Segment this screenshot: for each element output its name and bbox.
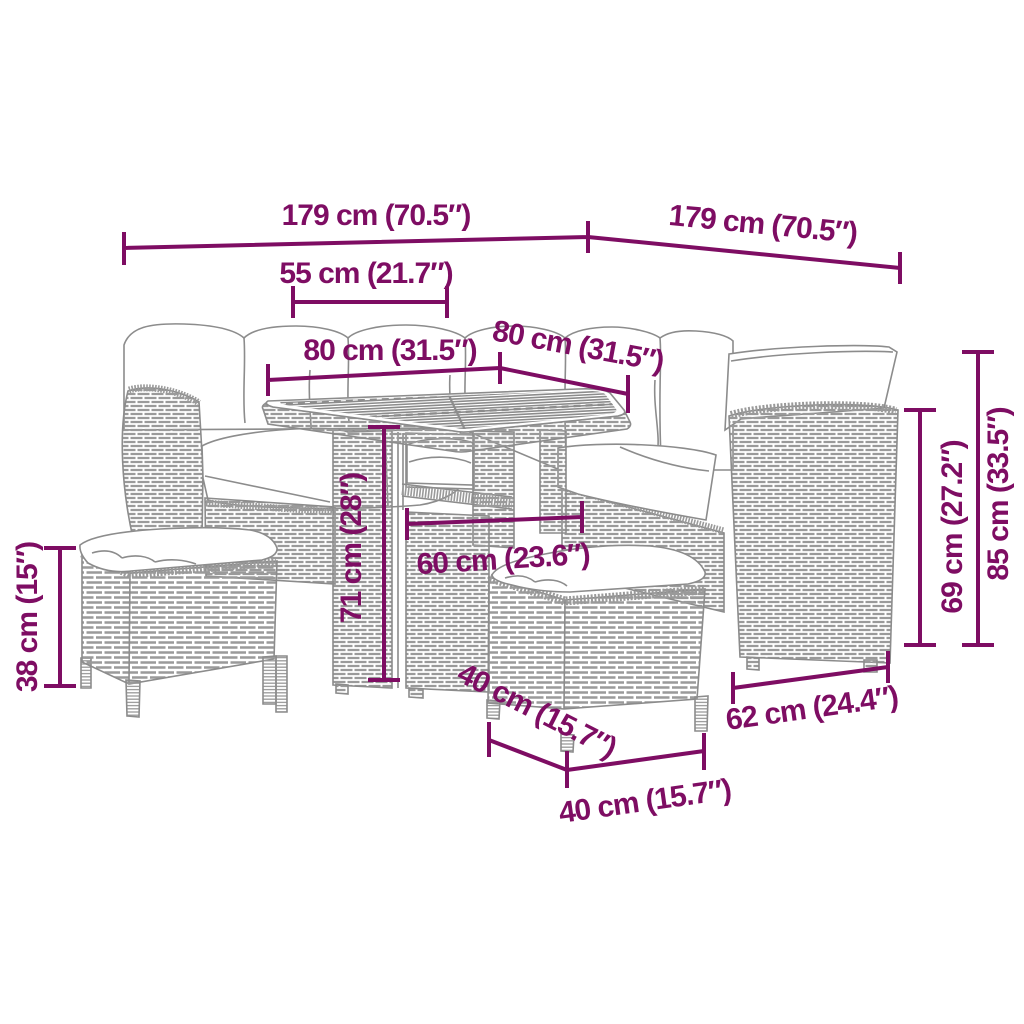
svg-text:55 cm (21.7″): 55 cm (21.7″)	[279, 257, 452, 290]
svg-text:71 cm (28″): 71 cm (28″)	[335, 473, 368, 623]
svg-text:38 cm (15″): 38 cm (15″)	[11, 542, 44, 692]
svg-text:69 cm (27.2″): 69 cm (27.2″)	[936, 440, 969, 613]
svg-text:179 cm (70.5″): 179 cm (70.5″)	[282, 199, 471, 232]
svg-text:85 cm (33.5″): 85 cm (33.5″)	[982, 407, 1015, 580]
svg-text:80 cm (31.5″): 80 cm (31.5″)	[303, 334, 476, 367]
